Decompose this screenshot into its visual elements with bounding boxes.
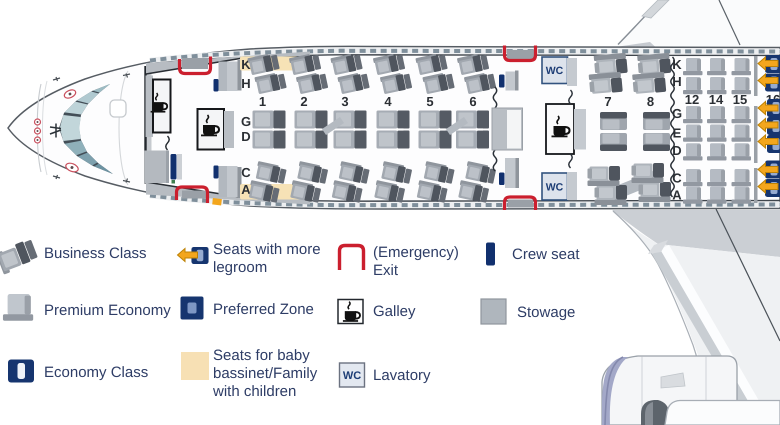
svg-text:8: 8 <box>647 94 654 109</box>
svg-text:C: C <box>672 171 682 186</box>
svg-text:WC: WC <box>546 65 564 77</box>
svg-text:Crew seat: Crew seat <box>512 246 580 263</box>
svg-text:Economy Class: Economy Class <box>44 364 148 381</box>
svg-text:Premium Economy: Premium Economy <box>44 302 171 319</box>
svg-text:C: C <box>241 165 251 180</box>
svg-text:D: D <box>241 129 250 144</box>
svg-text:E: E <box>673 126 682 141</box>
svg-text:Galley: Galley <box>373 303 416 320</box>
svg-text:4: 4 <box>384 94 392 109</box>
svg-text:12: 12 <box>685 92 699 107</box>
svg-text:Preferred Zone: Preferred Zone <box>213 301 314 318</box>
svg-text:Seats with more: Seats with more <box>213 241 321 258</box>
svg-text:Lavatory: Lavatory <box>373 367 431 384</box>
svg-text:K: K <box>672 57 682 72</box>
svg-text:Seats for baby: Seats for baby <box>213 347 310 364</box>
svg-text:7: 7 <box>604 94 611 109</box>
svg-text:6: 6 <box>469 94 476 109</box>
svg-text:2: 2 <box>300 94 307 109</box>
svg-text:D: D <box>672 143 681 158</box>
svg-text:A: A <box>672 188 682 203</box>
svg-text:H: H <box>241 76 250 91</box>
svg-text:5: 5 <box>426 94 433 109</box>
svg-text:G: G <box>241 114 251 129</box>
svg-text:bassinet/Family: bassinet/Family <box>213 365 318 382</box>
svg-text:legroom: legroom <box>213 259 267 276</box>
svg-text:WC: WC <box>343 370 361 382</box>
svg-text:1: 1 <box>259 94 266 109</box>
svg-text:Exit: Exit <box>373 262 399 279</box>
svg-text:Stowage: Stowage <box>517 304 575 321</box>
svg-text:3: 3 <box>341 94 348 109</box>
svg-text:14: 14 <box>709 92 724 107</box>
svg-text:G: G <box>672 106 682 121</box>
svg-text:with children: with children <box>212 383 296 400</box>
svg-text:Business Class: Business Class <box>44 245 147 262</box>
svg-text:WC: WC <box>546 182 564 194</box>
svg-text:H: H <box>672 74 681 89</box>
svg-text:(Emergency): (Emergency) <box>373 244 459 261</box>
svg-text:15: 15 <box>733 92 747 107</box>
